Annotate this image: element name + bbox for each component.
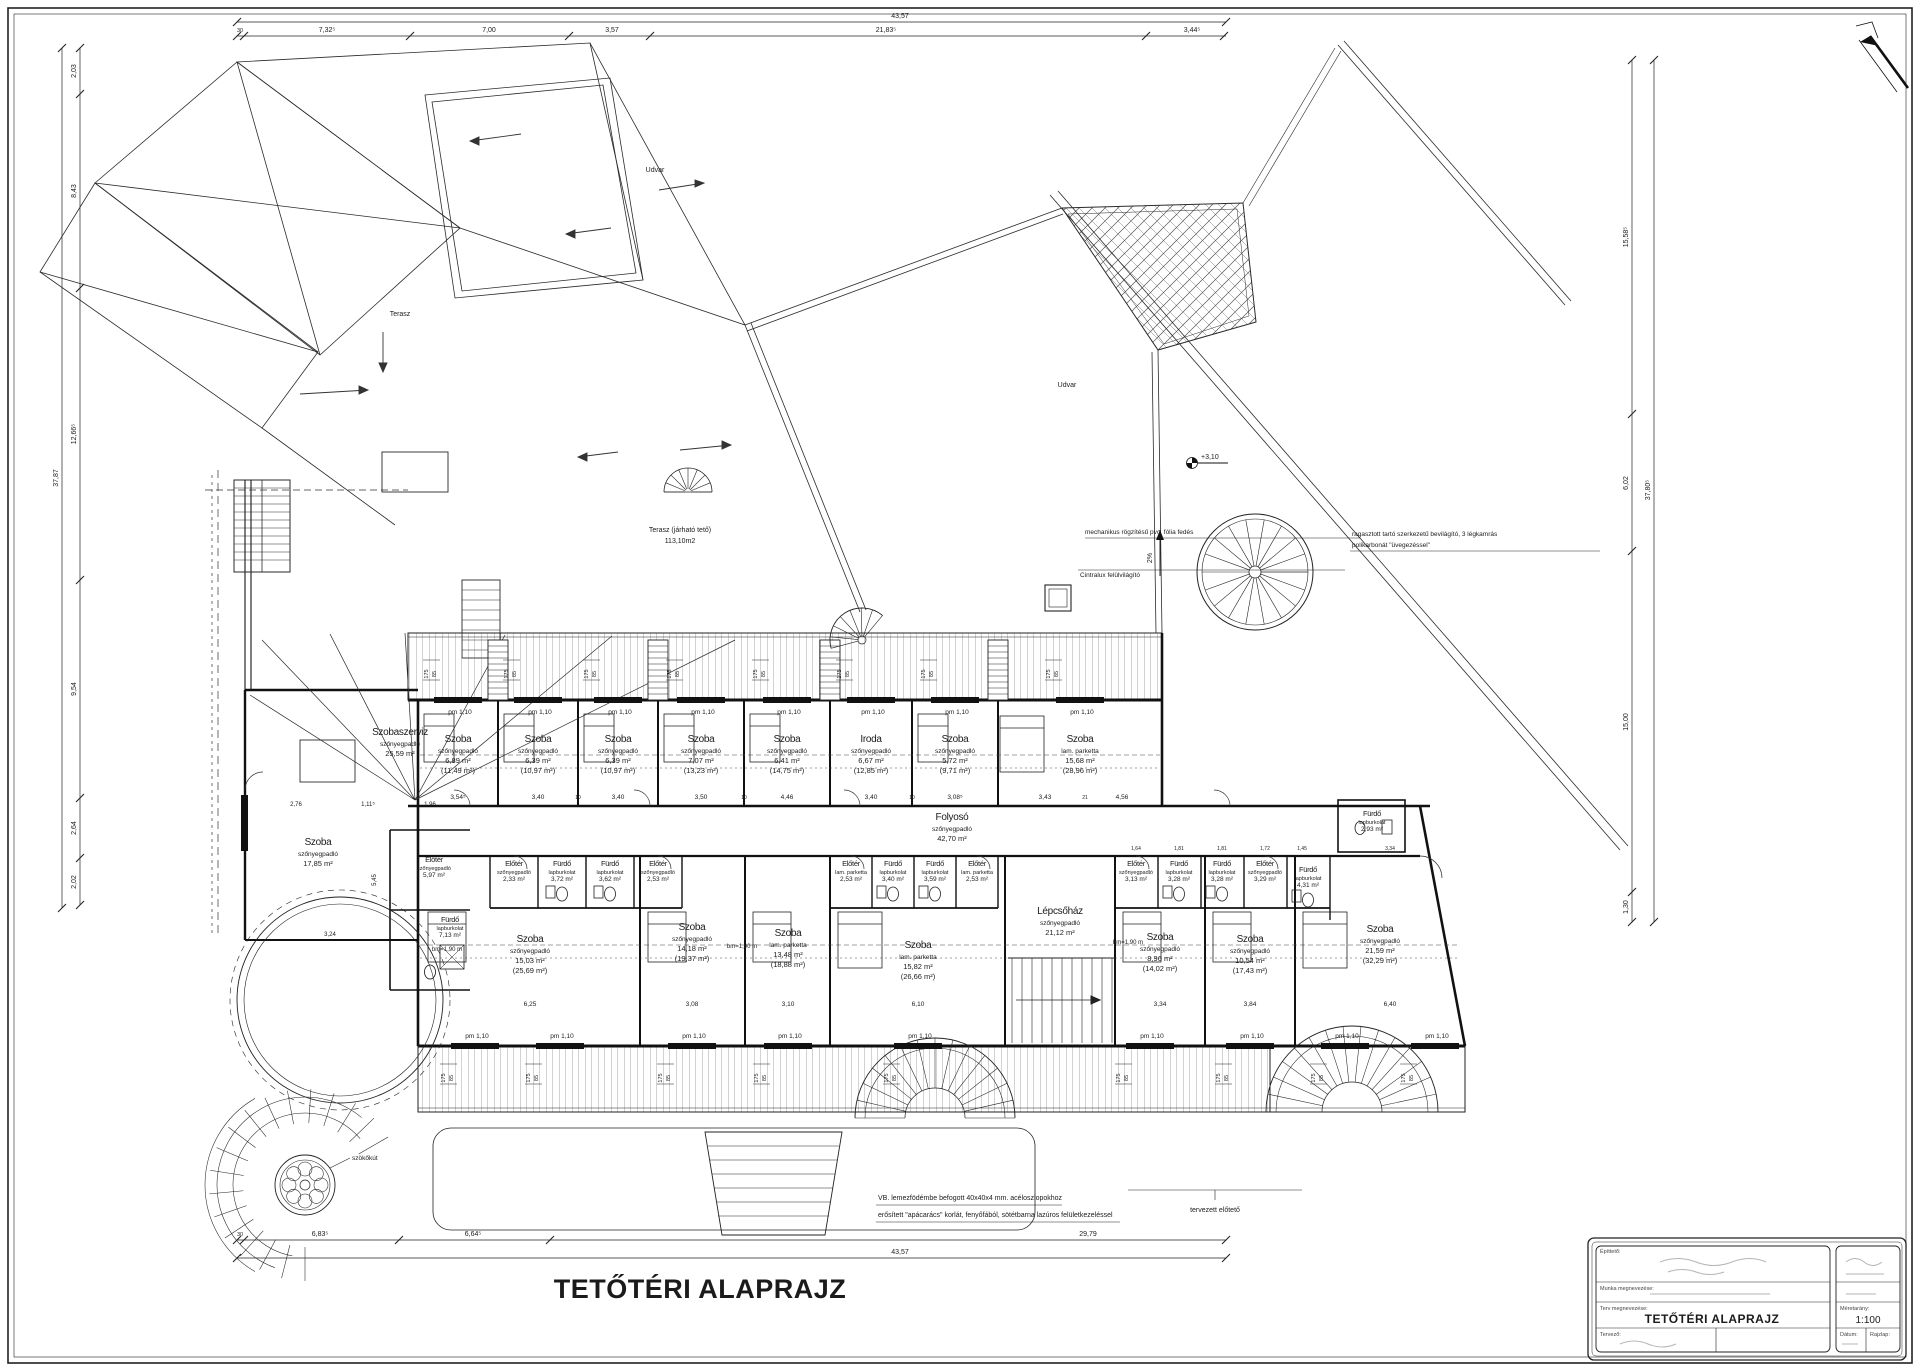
- room-area: 6,39 m²: [525, 756, 551, 765]
- circle: [300, 1180, 310, 1190]
- room-area: 3,62 m²: [599, 876, 622, 883]
- window-parapet-label: pm 1,10: [1140, 1033, 1164, 1040]
- dimension-label: 8,43: [71, 184, 78, 198]
- window-size-tag: 175: [1046, 669, 1052, 678]
- annotation: Udvar: [1058, 382, 1077, 389]
- room-name: Fürdő: [926, 859, 944, 868]
- room-area: 7,13 m²: [439, 932, 462, 939]
- annotation: mechanikus rögzítésű pvc. fólia fedés: [1085, 529, 1194, 536]
- room-floor: szőnyegpadló: [932, 826, 972, 833]
- annotation: 2%: [1147, 553, 1154, 563]
- window-sill: [434, 697, 482, 703]
- room-area-total: (13,23 m²): [684, 766, 719, 775]
- window-sill: [451, 1043, 499, 1049]
- window-sill: [847, 697, 895, 703]
- dimension-label: 3,10: [782, 1001, 795, 1008]
- room-name: Szoba: [1147, 932, 1175, 943]
- annotation: tervezett előtető: [1190, 1207, 1240, 1214]
- annotation: +3,10: [1201, 454, 1219, 461]
- room-area-total: (10,97 m²): [601, 766, 636, 775]
- dimension-label: 3,40: [865, 794, 878, 801]
- dimension-label: 6,64⁵: [465, 1231, 482, 1238]
- circle: [287, 1167, 301, 1181]
- room-floor: szőnyegpadló: [935, 748, 975, 755]
- dimension-label: 2,02: [71, 875, 78, 889]
- room-area: 3,13 m²: [1125, 876, 1148, 883]
- room-area-total: (17,43 m²): [1233, 966, 1268, 975]
- line: [359, 1137, 388, 1154]
- line: [209, 1191, 243, 1194]
- circle: [287, 1189, 301, 1203]
- dimension-label: 43,57: [891, 1249, 909, 1256]
- room-area: 6,39 m²: [605, 756, 631, 765]
- garden-steps: [705, 1132, 842, 1235]
- circle: [237, 897, 443, 1103]
- circle: [298, 1194, 312, 1208]
- window-sill: [894, 1043, 942, 1049]
- window-size-tag: 85: [1054, 671, 1060, 677]
- line: [228, 1127, 255, 1147]
- sheet-label: Rajzlap:: [1870, 1332, 1890, 1338]
- circle: [244, 904, 436, 1096]
- dimension-label: 3,43: [1039, 794, 1052, 801]
- room-area-total: (14,02 m²): [1143, 964, 1178, 973]
- window-size-tag: 175: [504, 669, 510, 678]
- dimension-label: 21: [1082, 795, 1088, 801]
- dimension-label: 6,40: [1384, 1001, 1397, 1008]
- room-floor: szőnyegpadló: [518, 748, 558, 755]
- annotation: erősített "apácarács" korlát, fenyőfából…: [878, 1212, 1113, 1219]
- drawing-sheet: 43,57307,32⁵7,003,5721,83⁵3,44⁵306,83⁵6,…: [0, 0, 1920, 1371]
- dimension-label: 43,57: [891, 13, 909, 20]
- line: [210, 1170, 244, 1175]
- room-area-total: (11,49 m²): [441, 766, 476, 775]
- room-area: 14,18 m²: [677, 944, 707, 953]
- window-size-tag: 175: [754, 1073, 760, 1082]
- window-size-tag: 175: [921, 669, 927, 678]
- line: [287, 1091, 293, 1124]
- slope-arrow: [1156, 530, 1164, 576]
- window-parapet-label: pm 1,10: [861, 709, 885, 716]
- line: [214, 1206, 246, 1217]
- room-name: Fürdő: [884, 859, 902, 868]
- dimension-label: 6,10: [912, 1001, 925, 1008]
- room-floor: szőnyegpadló: [1140, 946, 1180, 953]
- window-size-tag: 85: [845, 671, 851, 677]
- line: [1256, 578, 1264, 624]
- room-name: Iroda: [860, 734, 882, 745]
- window-parapet-label: pm 1,10: [1070, 709, 1094, 716]
- line: [689, 470, 697, 489]
- room-floor: szőnyegpadló: [1360, 938, 1400, 945]
- dimension-label: 1,30: [1623, 900, 1630, 914]
- dimension-label: 3,57: [605, 27, 619, 34]
- line: [679, 470, 687, 489]
- dimension-label: 4,56: [1116, 794, 1129, 801]
- room-area-total: (14,75 m²): [770, 766, 805, 775]
- window-sill: [763, 697, 811, 703]
- room-floor: szőnyegpadló: [851, 748, 891, 755]
- room-floor: szőnyegpadló: [438, 748, 478, 755]
- dimension-label: 30: [237, 28, 243, 34]
- room-area: 2,93 m²: [1361, 826, 1384, 833]
- room-name: Szoba: [1067, 734, 1095, 745]
- room-area-total: (19,37 m²): [675, 954, 710, 963]
- room-area: 6,67 m²: [858, 756, 884, 765]
- room-name: Fürdő: [601, 859, 619, 868]
- dimension-label: 2,64: [71, 821, 78, 835]
- room-name: Szobaszerviz: [372, 727, 428, 738]
- window-sill: [764, 1043, 812, 1049]
- window-sill: [1411, 1043, 1459, 1049]
- annotation: bm=1,90 m: [432, 947, 462, 953]
- lower-terrace-band: [418, 1046, 1465, 1112]
- room-name: Fürdő: [1170, 859, 1188, 868]
- room-area: 3,28 m²: [1168, 876, 1191, 883]
- window-sill: [677, 697, 725, 703]
- room-name: Szoba: [605, 734, 633, 745]
- room-area-total: (32,29 m²): [1363, 956, 1398, 965]
- dimension-label: 3,44⁵: [1184, 27, 1201, 34]
- window-size-tag: 85: [675, 671, 681, 677]
- circle: [298, 1162, 312, 1176]
- page-title: TETŐTÉRI ALAPRAJZ: [554, 1273, 847, 1304]
- dimension-label: 1,64: [1131, 846, 1141, 852]
- window-sill: [1226, 1043, 1274, 1049]
- dimension-label: 6,83⁵: [312, 1231, 329, 1238]
- circle: [280, 1160, 330, 1210]
- room-area: 15,68 m²: [1065, 756, 1095, 765]
- window-parapet-label: pm 1,10: [777, 709, 801, 716]
- window-size-tag: 175: [584, 669, 590, 678]
- room-name: Szoba: [1367, 924, 1395, 935]
- window-sill: [1321, 1043, 1369, 1049]
- window-size-tag: 175: [753, 669, 759, 678]
- line: [671, 475, 686, 490]
- room-area-total: (9,71 m²): [940, 766, 971, 775]
- arc: [233, 1113, 360, 1256]
- line: [1246, 520, 1254, 566]
- room-area: 2,53 m²: [647, 876, 670, 883]
- window-parapet-label: pm 1,10: [682, 1033, 706, 1040]
- dimension-label: 2,03: [71, 64, 78, 78]
- annotation: polikarbonát "üvegezéssel": [1352, 542, 1431, 549]
- window-size-tag: 175: [441, 1073, 447, 1082]
- room-area: 21,12 m²: [1045, 928, 1075, 937]
- dimension-label: 1,81: [1217, 846, 1227, 852]
- room-name: Szoba: [905, 940, 933, 951]
- room-floor: szőnyegpadló: [510, 948, 550, 955]
- room-area: 2,33 m²: [503, 876, 526, 883]
- window-sill: [536, 1043, 584, 1049]
- window-size-tag: 85: [1124, 1075, 1130, 1081]
- staircase-treads: [1008, 958, 1115, 1043]
- dimension-label: 10: [575, 795, 581, 801]
- room-name: Szoba: [1237, 934, 1265, 945]
- window-size-tag: 85: [1409, 1075, 1415, 1081]
- window-parapet-label: pm 1,10: [608, 709, 632, 716]
- roof-slope-arrows: [300, 134, 731, 461]
- circle: [282, 1178, 296, 1192]
- room-area: 21,59 m²: [1365, 946, 1395, 955]
- room-area-total: (28,96 m²): [1063, 766, 1098, 775]
- room-name: Előtér: [1127, 859, 1146, 868]
- room-area: 2,53 m²: [966, 876, 989, 883]
- room-floor: szőnyegpadló: [767, 748, 807, 755]
- room-floor: szőnyegpadló: [298, 851, 338, 858]
- dimension-label: 3,34: [1154, 1001, 1167, 1008]
- annotation: Terasz (járható tető): [649, 527, 711, 534]
- room-name: Lépcsőház: [1037, 906, 1083, 917]
- circle: [275, 1155, 335, 1215]
- window-size-tag: 85: [592, 671, 598, 677]
- dimension-label: 10: [909, 795, 915, 801]
- window-sill: [514, 697, 562, 703]
- room-floor: lam. parketta: [769, 942, 807, 949]
- window-size-tag: 175: [1401, 1073, 1407, 1082]
- window-size-tag: 85: [1319, 1075, 1325, 1081]
- client-label: Építtető:: [1600, 1248, 1621, 1255]
- room-area-total: (25,69 m²): [513, 966, 548, 975]
- room-area: 13,48 m²: [773, 950, 803, 959]
- annotation: Udvar: [646, 167, 665, 174]
- dimension-label: 3,54⁵: [450, 794, 466, 801]
- window-parapet-label: pm 1,10: [778, 1033, 802, 1040]
- window-size-tag: 175: [1216, 1073, 1222, 1082]
- room-area: 8,96 m²: [1147, 954, 1173, 963]
- room-name: Szoba: [517, 934, 545, 945]
- arc: [1322, 1082, 1382, 1112]
- circle: [314, 1178, 328, 1192]
- window-sill: [1126, 1043, 1174, 1049]
- dimension-label: 3,34: [1385, 846, 1395, 852]
- window-size-tag: 175: [884, 1073, 890, 1082]
- scale-value: 1:100: [1855, 1315, 1880, 1326]
- room-area: 2,53 m²: [840, 876, 863, 883]
- window-sill: [931, 697, 979, 703]
- dimension-label: 1,81: [1174, 846, 1184, 852]
- dimension-label: 1,11⁵: [361, 801, 375, 808]
- room-name: Szoba: [305, 837, 333, 848]
- annotation: ragasztott tartó szerkezetű bevilágító, …: [1352, 531, 1498, 538]
- window-size-tag: 85: [432, 671, 438, 677]
- room-name: Szoba: [679, 922, 707, 933]
- circle: [1249, 566, 1261, 578]
- room-name: Szoba: [774, 734, 802, 745]
- line: [1258, 526, 1282, 567]
- dimension-label: 1,72: [1260, 846, 1270, 852]
- line: [240, 1231, 263, 1256]
- room-name: Folyosó: [936, 812, 970, 823]
- line: [861, 608, 862, 636]
- room-name: Szoba: [688, 734, 716, 745]
- room-name: Szoba: [775, 928, 803, 939]
- room-name: Szoba: [445, 734, 473, 745]
- room-name: Szoba: [525, 734, 553, 745]
- line: [690, 475, 705, 490]
- arc: [217, 1097, 362, 1268]
- left-wing: [241, 690, 470, 990]
- room-name: Szoba: [942, 734, 970, 745]
- room-floor: szőnyegpadló: [681, 748, 721, 755]
- window-parapet-label: pm 1,10: [1335, 1033, 1359, 1040]
- room-floor: lam. parketta: [899, 954, 937, 961]
- room-area: 3,29 m²: [1254, 876, 1277, 883]
- line: [350, 1118, 374, 1142]
- room-area: 3,72 m²: [551, 876, 574, 883]
- dimension-label: 15,58⁵: [1623, 227, 1630, 248]
- window-parapet-label: pm 1,10: [550, 1033, 574, 1040]
- furniture-beds-lower: [428, 912, 1347, 968]
- line: [1258, 577, 1282, 618]
- dimension-label: 3,50: [695, 794, 708, 801]
- line: [666, 483, 685, 491]
- dimension-label: 15,00: [1623, 713, 1630, 731]
- room-name: Előtér: [649, 859, 668, 868]
- window-parapet-label: pm 1,10: [945, 709, 969, 716]
- window-size-tag: 85: [892, 1075, 898, 1081]
- dimension-label: 7,00: [482, 27, 496, 34]
- dimension-label: 3,08: [686, 1001, 699, 1008]
- window-size-tag: 175: [1311, 1073, 1317, 1082]
- dimension-label: 1,45: [1297, 846, 1307, 852]
- room-floor: szőnyegpadló: [1040, 920, 1080, 927]
- date-label: Dátum:: [1840, 1332, 1858, 1338]
- room-name: Fürdő: [1363, 809, 1381, 818]
- dimension-label: 21,83⁵: [876, 27, 897, 34]
- line: [217, 1148, 248, 1161]
- window-size-tag: 175: [526, 1073, 532, 1082]
- annotation: Cintralux felülvilágító: [1080, 572, 1140, 579]
- arc: [205, 1098, 255, 1271]
- room-name: Fürdő: [441, 915, 459, 924]
- title-block: Építtető: Munka megnevezése: Terv megnev…: [1588, 1238, 1906, 1360]
- room-area: 4,31 m²: [1297, 882, 1320, 889]
- dimension-label: 3,40: [612, 794, 625, 801]
- dimension-label: 3,84: [1244, 1001, 1257, 1008]
- window-parapet-label: pm 1,10: [691, 709, 715, 716]
- line: [1229, 526, 1253, 567]
- line: [1256, 520, 1264, 566]
- room-area-total: (10,97 m²): [521, 766, 556, 775]
- room-area: 3,59 m²: [924, 876, 947, 883]
- room-area: 7,07 m²: [688, 756, 714, 765]
- line: [863, 610, 872, 636]
- line: [1246, 578, 1254, 624]
- work-label: Munka megnevezése:: [1600, 1286, 1654, 1292]
- annotation: Terasz: [390, 311, 411, 318]
- room-area: 25,59 m²: [385, 749, 415, 758]
- window-parapet-label: pm 1,10: [1425, 1033, 1449, 1040]
- room-floor: szőnyegpadló: [380, 741, 420, 748]
- room-area: 5,72 m²: [942, 756, 968, 765]
- window-size-tag: 175: [424, 669, 430, 678]
- window-size-tag: 85: [512, 671, 518, 677]
- dimension-label: 1,96: [424, 802, 436, 808]
- roof-northwest: [40, 43, 1063, 612]
- room-area: 42,70 m²: [937, 834, 967, 843]
- designer-label: Tervező:: [1600, 1332, 1621, 1338]
- circle: [309, 1167, 323, 1181]
- window-sill: [594, 697, 642, 703]
- drawing-name: TETŐTÉRI ALAPRAJZ: [1645, 1311, 1780, 1326]
- room-name: Előtér: [505, 859, 524, 868]
- dimension-label: 9,54: [71, 682, 78, 696]
- annotation: bm=1,90 m: [727, 944, 757, 950]
- window-size-tag: 85: [449, 1075, 455, 1081]
- line: [260, 1240, 276, 1270]
- dimension-label: 3,24: [324, 932, 336, 938]
- room-area: 5,97 m²: [423, 872, 446, 879]
- dimension-label: 7,32⁵: [319, 27, 336, 34]
- dimension-label: 6,25: [524, 1001, 537, 1008]
- scale-label: Méretarány:: [1840, 1306, 1870, 1312]
- room-name: Fürdő: [1299, 865, 1317, 874]
- room-area: 15,82 m²: [903, 962, 933, 971]
- room-labels: Szobaszőnyegpadló6,89 m²(11,49 m²)Szobas…: [298, 727, 1400, 981]
- circle: [309, 1189, 323, 1203]
- room-area: 6,41 m²: [774, 756, 800, 765]
- window-size-tag: 175: [837, 669, 843, 678]
- room-floor: szőnyegpadló: [672, 936, 712, 943]
- dimension-label: 5,45: [372, 874, 378, 886]
- room-name: Előtér: [425, 855, 444, 864]
- window-size-tag: 85: [761, 671, 767, 677]
- window-size-tag: 85: [1224, 1075, 1230, 1081]
- dimension-label: 4,46: [781, 794, 794, 801]
- floorplan-canvas: 43,57307,32⁵7,003,5721,83⁵3,44⁵306,83⁵6,…: [0, 0, 1920, 1371]
- dimension-label: 37,80⁵: [1645, 480, 1652, 501]
- upper-roof-joist-band: [408, 633, 1162, 700]
- room-name: Előtér: [842, 859, 861, 868]
- room-area-total: (12,85 m²): [854, 766, 889, 775]
- room-area: 3,40 m²: [882, 876, 905, 883]
- annotation: bm=1,90 m: [1113, 940, 1143, 946]
- window-sill: [668, 1043, 716, 1049]
- dimension-label: 6,02: [1623, 476, 1630, 490]
- room-name: Előtér: [1256, 859, 1275, 868]
- room-floor: szőnyegpadló: [1230, 948, 1270, 955]
- room-area: 6,89 m²: [445, 756, 471, 765]
- line: [282, 1245, 290, 1278]
- annotation: szökőkút: [352, 1155, 378, 1162]
- room-area: 15,03 m²: [515, 956, 545, 965]
- dimension-label: 10: [741, 795, 747, 801]
- garden-lawn: [433, 1128, 1302, 1230]
- window-size-tag: 175: [667, 669, 673, 678]
- window-size-tag: 85: [666, 1075, 672, 1081]
- window-parapet-label: pm 1,10: [528, 709, 552, 716]
- annotation: VB. lemezfödémbe befogott 40x40x4 mm. ac…: [878, 1195, 1063, 1202]
- dimension-label: 37,87: [53, 469, 60, 487]
- window-parapet-label: pm 1,10: [465, 1033, 489, 1040]
- dimension-label: 29,79: [1079, 1231, 1097, 1238]
- window-size-tag: 85: [762, 1075, 768, 1081]
- drawing-label: Terv megnevezése:: [1600, 1306, 1648, 1312]
- room-area: 10,54 m²: [1235, 956, 1265, 965]
- window-size-tag: 85: [929, 671, 935, 677]
- window-parapet-label: pm 1,10: [908, 1033, 932, 1040]
- line: [1229, 577, 1253, 618]
- window-parapet-label: pm 1,10: [448, 709, 472, 716]
- room-floor: szőnyegpadló: [598, 748, 638, 755]
- dimension-label: 12,66⁵: [71, 424, 78, 445]
- window-size-tag: 85: [534, 1075, 540, 1081]
- dimension-label: 30: [237, 1232, 243, 1238]
- room-area-total: (26,66 m²): [901, 972, 936, 981]
- room-name: Fürdő: [1213, 859, 1231, 868]
- room-floor: lam. parketta: [1061, 748, 1099, 755]
